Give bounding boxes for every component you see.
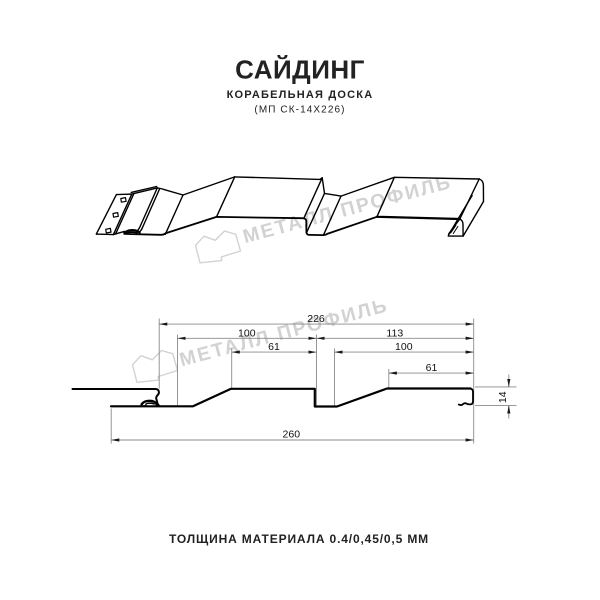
svg-text:14: 14 [497,391,509,403]
svg-text:61: 61 [268,341,280,353]
svg-text:САЙДИНГ: САЙДИНГ [235,55,365,85]
svg-text:100: 100 [238,327,256,339]
svg-text:100: 100 [395,341,413,353]
svg-text:113: 113 [386,327,403,339]
svg-text:ТОЛЩИНА МАТЕРИАЛА 0.4/0,45/0,5: ТОЛЩИНА МАТЕРИАЛА 0.4/0,45/0,5 ММ [169,532,429,546]
svg-text:226: 226 [307,313,325,325]
svg-text:КОРАБЕЛЬНАЯ ДОСКА: КОРАБЕЛЬНАЯ ДОСКА [227,89,374,101]
svg-text:(МП СК-14Х226): (МП СК-14Х226) [254,105,345,116]
svg-text:260: 260 [283,429,301,441]
svg-text:61: 61 [426,362,438,374]
